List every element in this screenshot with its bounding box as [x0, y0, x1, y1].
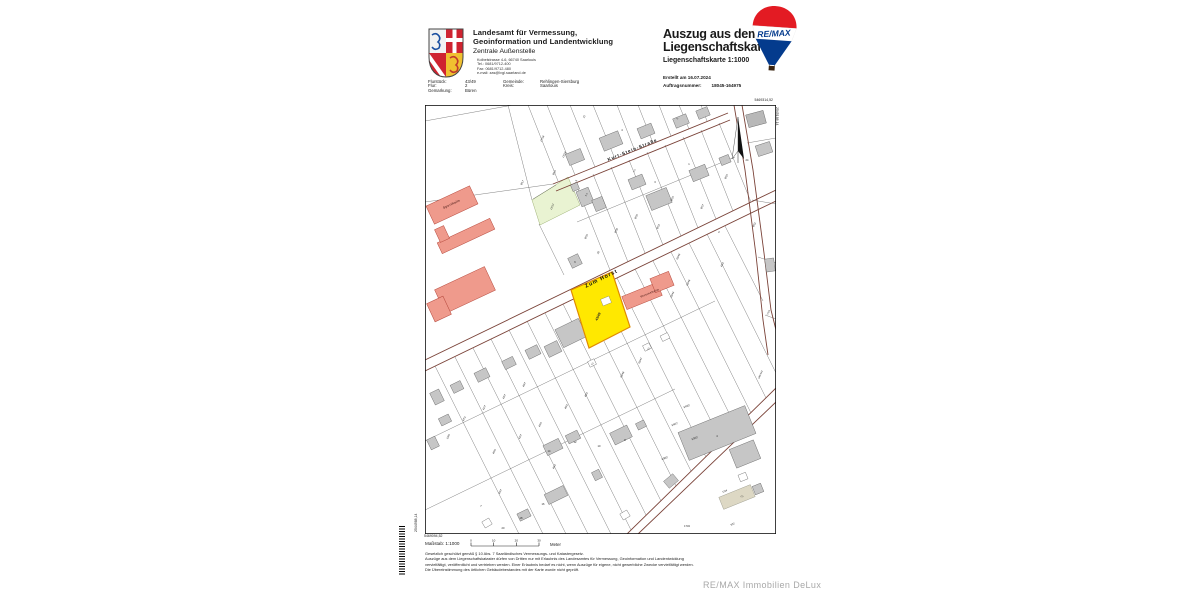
agency-address: Kolbelstrasse 4-6, 66740 SaarlouisTel.: …: [473, 58, 613, 76]
parcel-label: 8/17: [519, 179, 525, 186]
parcel-label: 43/45: [675, 252, 682, 260]
parcel-label: 2: [718, 230, 720, 234]
order-number-value: 18045-164975: [712, 83, 742, 88]
kreis-label: Kreis:: [503, 84, 514, 89]
parcel-label: 3: [654, 180, 656, 184]
parcel-label: (1): [741, 496, 744, 498]
parcel-label: 47/1: [461, 415, 467, 422]
agency-block: Landesamt für Vermessung, Geoinformation…: [473, 29, 613, 76]
parcel-label: 538/2: [661, 455, 669, 461]
remax-balloon-logo: RE/MAX: [744, 3, 804, 77]
coordinate-east-right: 2545188,14: [775, 107, 779, 126]
map-canvas: 17/1812/188/19224268/1712/175 a1 b318/24…: [425, 105, 776, 534]
parcel-label: 8/34: [723, 173, 729, 180]
gemarkung-label: Gemarkung:: [428, 89, 452, 94]
parcel-label: 16: [542, 502, 545, 506]
parcel-label: 4: [621, 128, 623, 132]
parcel-label: 44/7: [497, 488, 503, 495]
parcel-label: 537: [730, 521, 736, 527]
scale-tick-label: 0: [470, 539, 472, 543]
parcel-label: 12: [574, 440, 577, 444]
cadastral-extract-page: Landesamt für Vermessung, Geoinformation…: [0, 0, 1200, 600]
parcel-label: 44/4: [537, 421, 543, 428]
parcel-label: 1001/542: [758, 370, 764, 380]
parcel-label: 48/2: [583, 391, 589, 398]
scale-tick-label: 10: [492, 539, 496, 543]
parcel-label: 8/24: [669, 195, 675, 202]
legal-notice: Gesetzlich geschützt gemäß § 10 Abs. 7 S…: [425, 551, 905, 572]
parcel-label: 15/9: [445, 433, 451, 440]
parcel-label: 43/7: [501, 393, 507, 400]
kreis-value: Saarlouis: [540, 84, 558, 89]
saarland-coat-of-arms-icon: [427, 27, 465, 79]
parcel-label: 28: [596, 250, 601, 255]
parcel-label: 7: [480, 504, 482, 508]
parcel-label: 1: [688, 162, 690, 166]
scale-label: Maßstab: 1:1000: [425, 541, 459, 546]
order-number-label: Auftragsnummer:: [663, 83, 702, 88]
north-arrow-icon: [732, 117, 744, 163]
parcel-label: 8/20: [633, 213, 639, 220]
watermark: RE/MAX Immobilien DeLux: [703, 580, 821, 590]
parcel-label: 24: [746, 158, 749, 162]
parcel-label: 40/9: [491, 448, 497, 455]
scale-tick-label: 20: [515, 539, 519, 543]
parcel-label: 1 b: [633, 168, 636, 172]
document-barcode: [399, 526, 405, 576]
parcel-label: 8/28: [613, 227, 619, 234]
parcel-label: 540/7: [671, 421, 679, 427]
agency-office: Zentrale Außenstelle: [473, 48, 613, 55]
parcel-label: 20: [502, 526, 505, 530]
coordinate-west-left: 2544988,14: [414, 514, 418, 533]
gemarkung-value: Büren: [465, 89, 476, 94]
parcel-label: 1/34: [722, 488, 729, 494]
coordinate-north-bottom: 5469094,52: [424, 534, 443, 538]
parcel-label: 6: [574, 179, 578, 183]
remax-wordmark: RE/MAX: [757, 28, 792, 40]
parcel-label: 43/2: [719, 261, 725, 268]
parcel-label: 45/7: [521, 381, 527, 388]
agency-address-line: e-mail: zas@lvgl.saarland.de: [477, 71, 613, 76]
agency-name-line2: Geoinformation und Landentwicklung: [473, 38, 613, 47]
scale-bar: 0102030: [468, 538, 544, 549]
parcel-label: 42/7: [517, 433, 523, 440]
parcel-label: 8/29: [583, 233, 589, 240]
parcel-label: 43/48: [619, 370, 626, 378]
parcel-label: 8/19: [551, 169, 557, 176]
parcel-label: 41/7: [481, 404, 487, 411]
order-number-row: Auftragsnummer:18045-164975: [663, 83, 760, 88]
scale-unit: Meter: [550, 542, 561, 547]
coordinate-north-top: 5469314,52: [723, 98, 773, 102]
parcel-label: 43/44: [669, 290, 676, 298]
parcel-label: 1734: [684, 524, 690, 528]
parcel-label: 49/2: [551, 463, 557, 470]
legal-line: Die Übereinstimmung des örtlichen Gebäud…: [425, 567, 905, 572]
cadastral-map: 17/1812/188/19224268/1712/175 a1 b318/24…: [425, 105, 776, 534]
parcel-label: 8/27: [699, 203, 705, 210]
parcel-label: 22: [582, 114, 587, 119]
parcel-label: 10: [598, 444, 601, 448]
parcel-label: 543/2: [683, 403, 691, 409]
scale-tick-label: 30: [537, 539, 541, 543]
parcel-label: 43/47: [637, 356, 644, 364]
parcel-label: 8/23: [655, 223, 661, 230]
